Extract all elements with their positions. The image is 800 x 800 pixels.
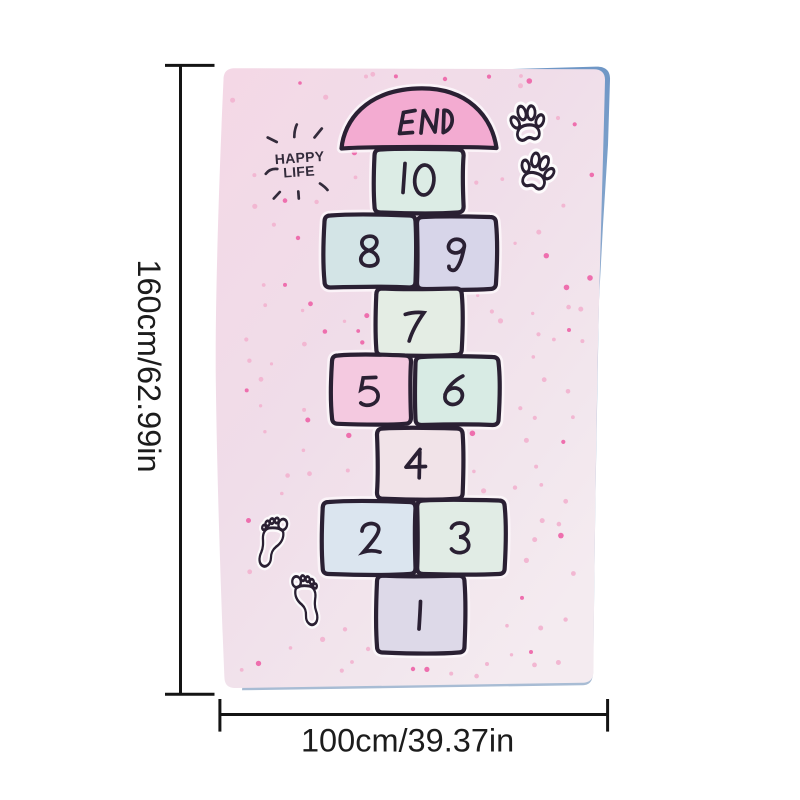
svg-text:160cm/62.99in: 160cm/62.99in xyxy=(131,259,167,472)
svg-text:100cm/39.37in: 100cm/39.37in xyxy=(301,723,514,759)
svg-text:LIFE: LIFE xyxy=(283,163,316,181)
